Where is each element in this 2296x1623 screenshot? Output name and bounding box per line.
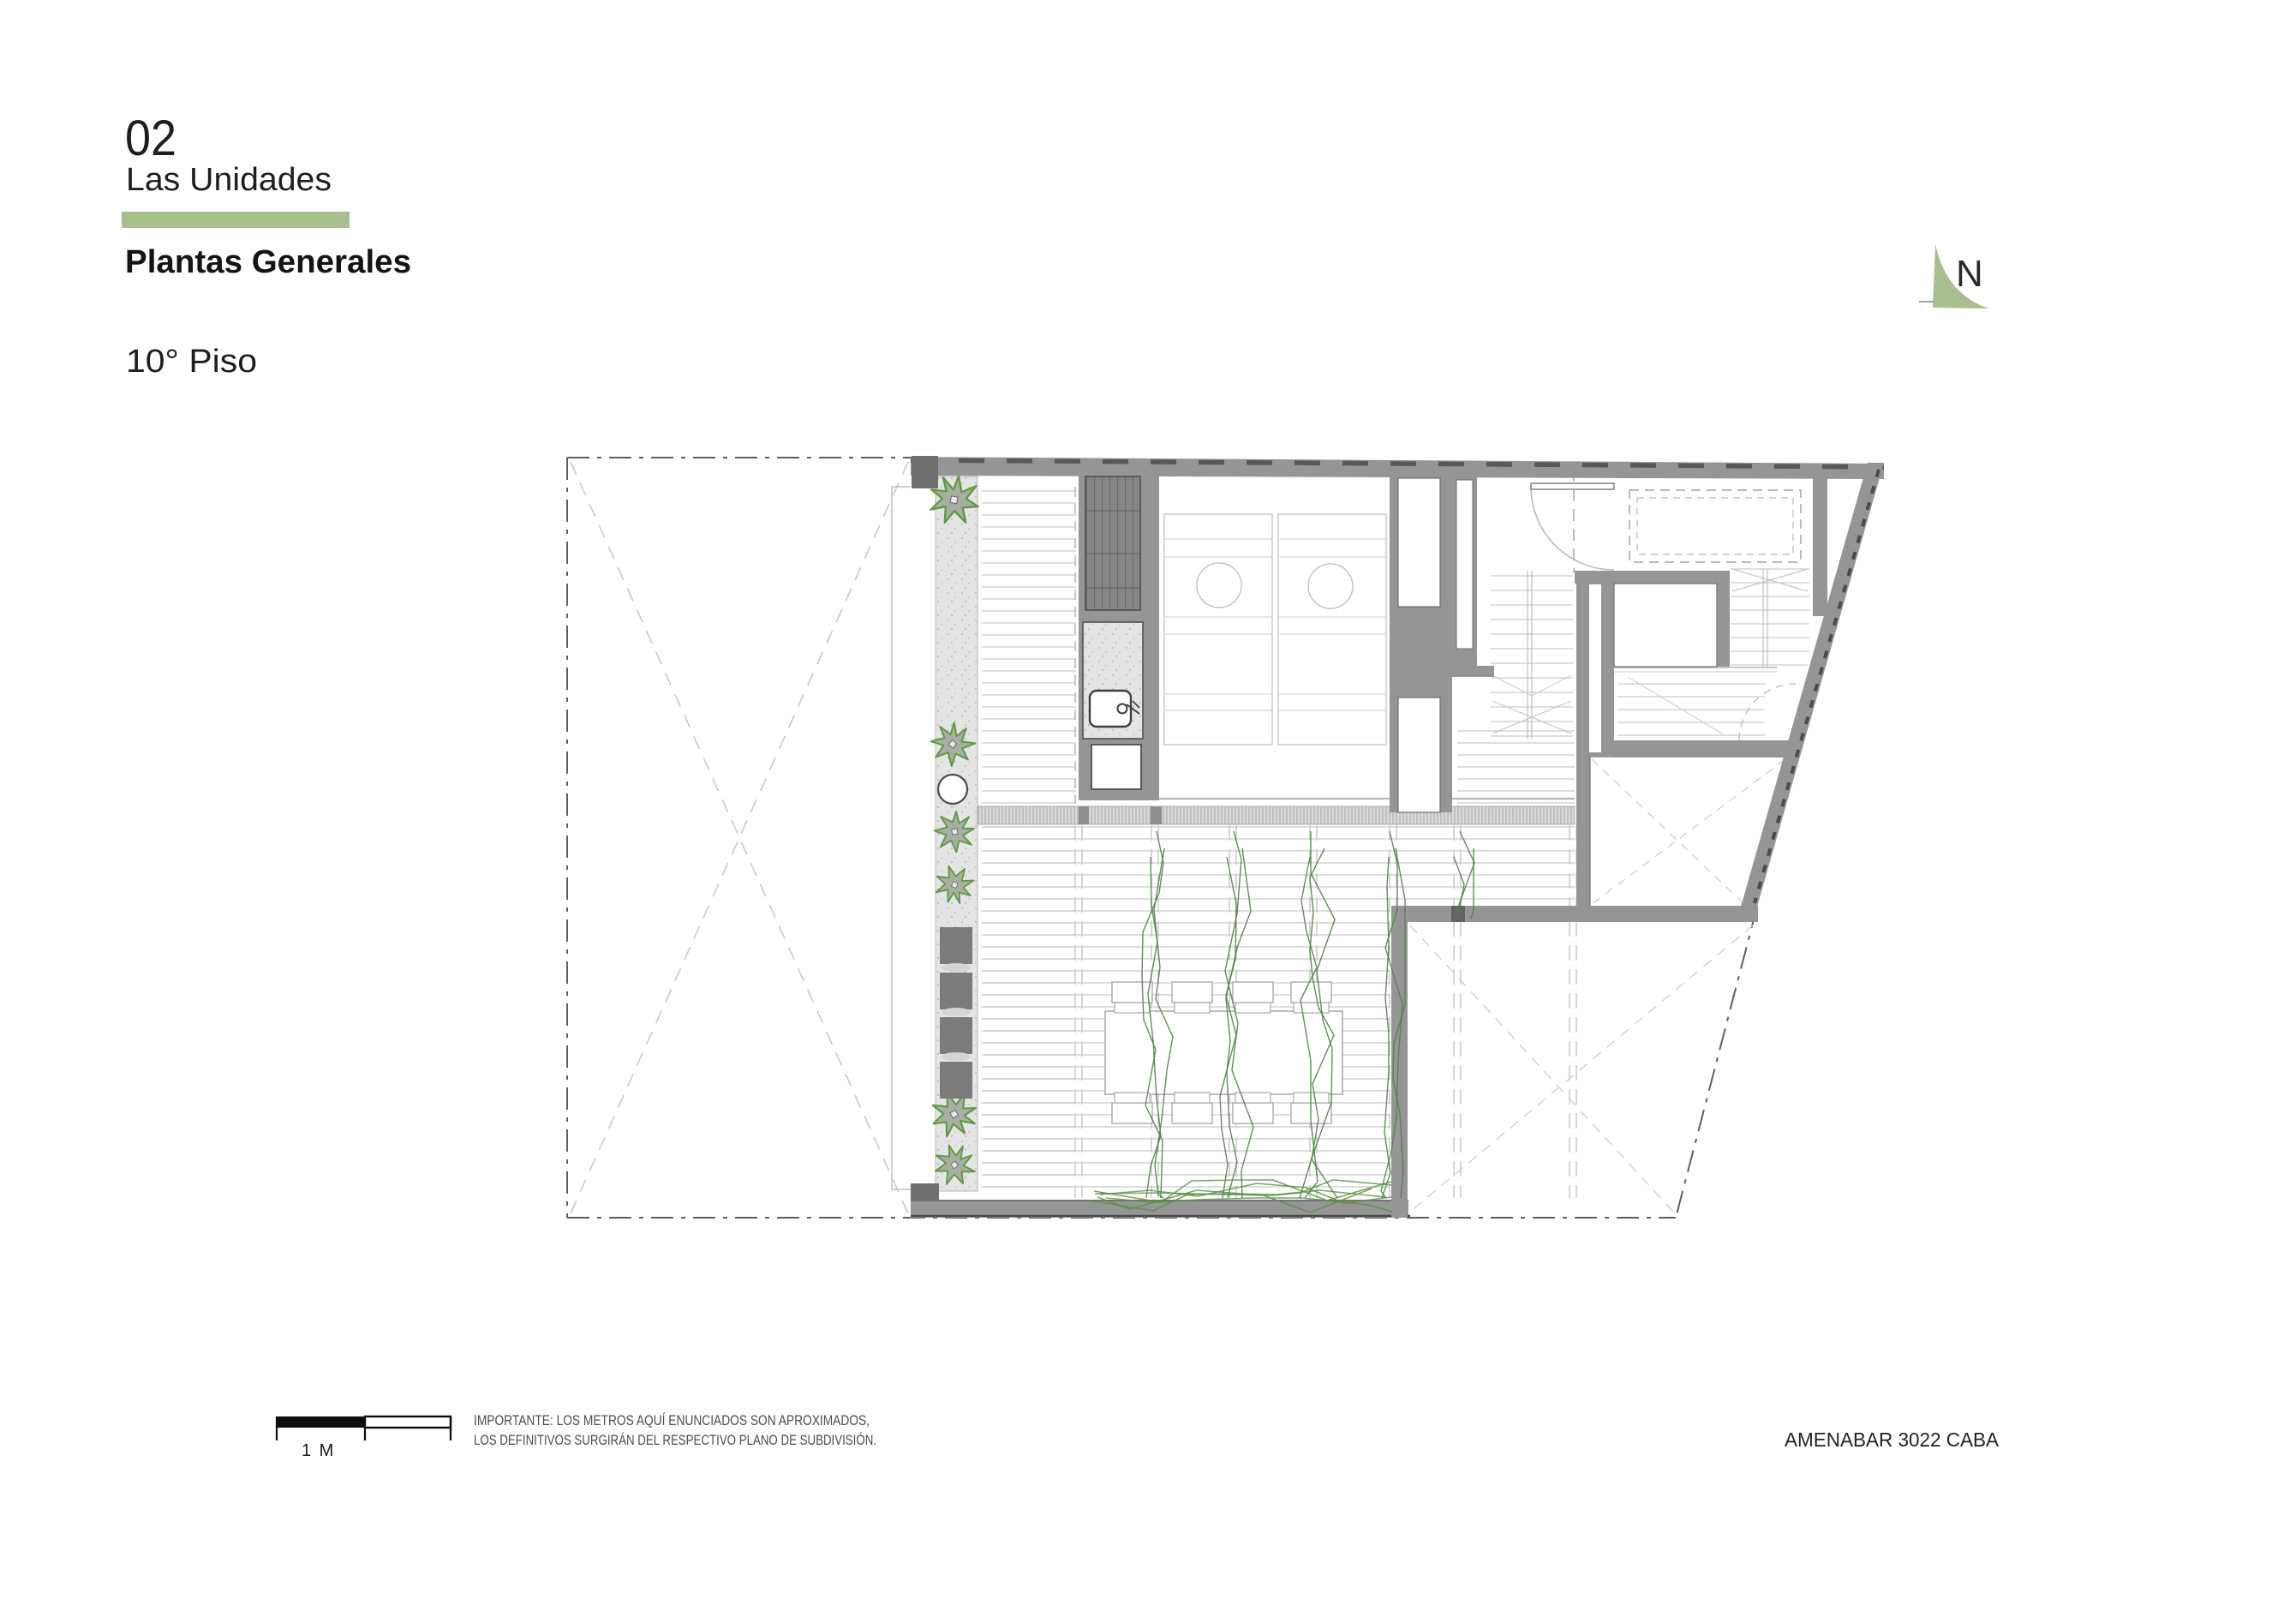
svg-text:AMENABAR 3022 CABA: AMENABAR 3022 CABA bbox=[1785, 1428, 2000, 1451]
svg-text:10° Piso: 10° Piso bbox=[126, 344, 257, 380]
svg-text:N: N bbox=[1956, 253, 1983, 295]
svg-text:LOS DEFINITIVOS SURGIRÁN DEL R: LOS DEFINITIVOS SURGIRÁN DEL RESPECTIVO … bbox=[474, 1432, 876, 1448]
svg-text:IMPORTANTE: LOS METROS AQUÍ EN: IMPORTANTE: LOS METROS AQUÍ ENUNCIADOS S… bbox=[474, 1412, 870, 1428]
svg-text:1 M: 1 M bbox=[302, 1441, 335, 1460]
svg-text:02: 02 bbox=[125, 111, 176, 166]
svg-text:Plantas Generales: Plantas Generales bbox=[125, 244, 411, 280]
svg-text:Las Unidades: Las Unidades bbox=[126, 162, 332, 198]
